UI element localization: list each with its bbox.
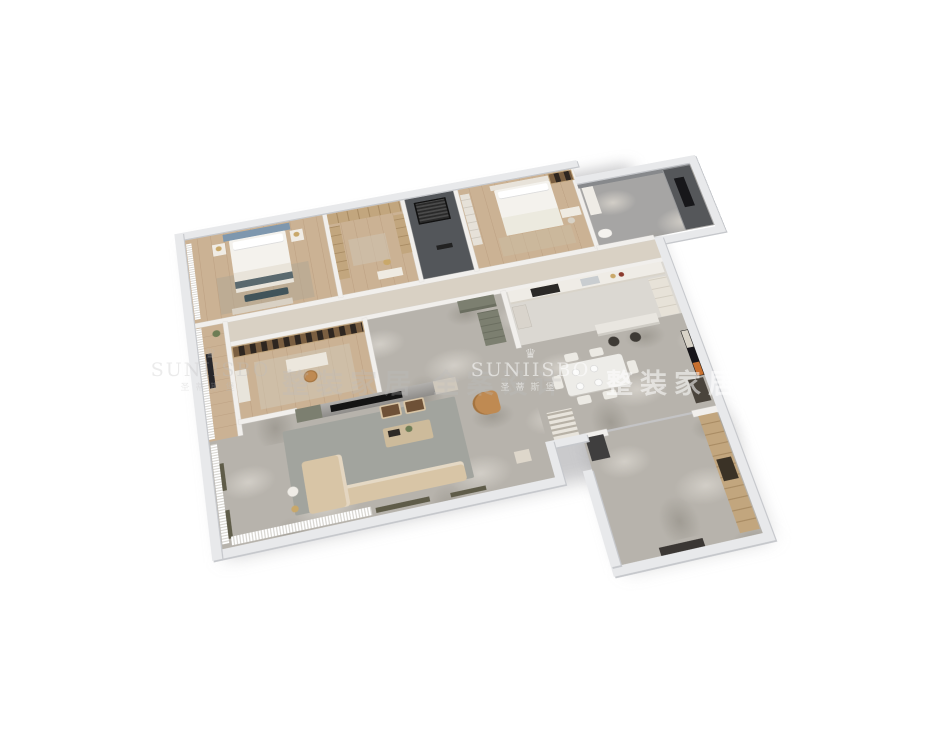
- apartment-plan: [184, 147, 833, 653]
- floorplan-render: ♛ SUNIISBO 圣蒂斯堡 整装家居 全案设计 ♛ SUNIISBO 圣蒂斯…: [0, 0, 950, 733]
